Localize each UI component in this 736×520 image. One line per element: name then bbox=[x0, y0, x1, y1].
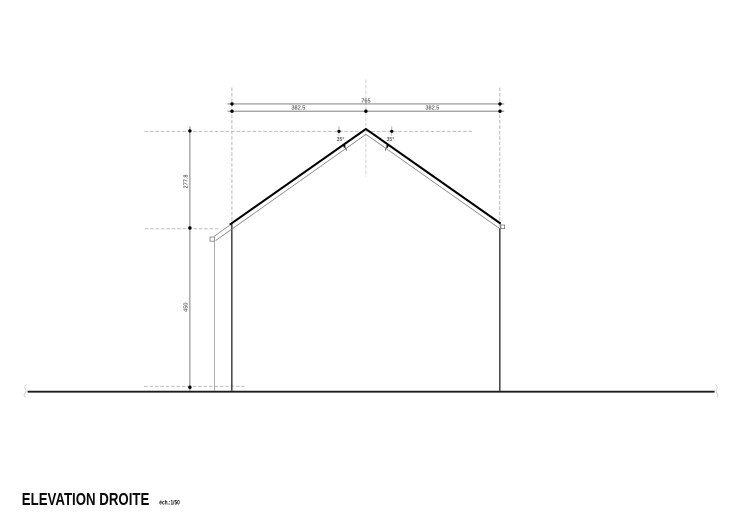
svg-text:382.5: 382.5 bbox=[425, 106, 439, 112]
svg-text:éch.:1/50: éch.:1/50 bbox=[159, 499, 180, 506]
svg-text:277.8: 277.8 bbox=[183, 175, 189, 189]
svg-text:450: 450 bbox=[183, 303, 189, 312]
svg-text:35°: 35° bbox=[386, 137, 394, 143]
svg-text:ELEVATION DROITE: ELEVATION DROITE bbox=[22, 489, 150, 509]
svg-text:765: 765 bbox=[361, 99, 370, 105]
svg-text:382.5: 382.5 bbox=[291, 106, 305, 112]
svg-text:35°: 35° bbox=[337, 137, 345, 143]
